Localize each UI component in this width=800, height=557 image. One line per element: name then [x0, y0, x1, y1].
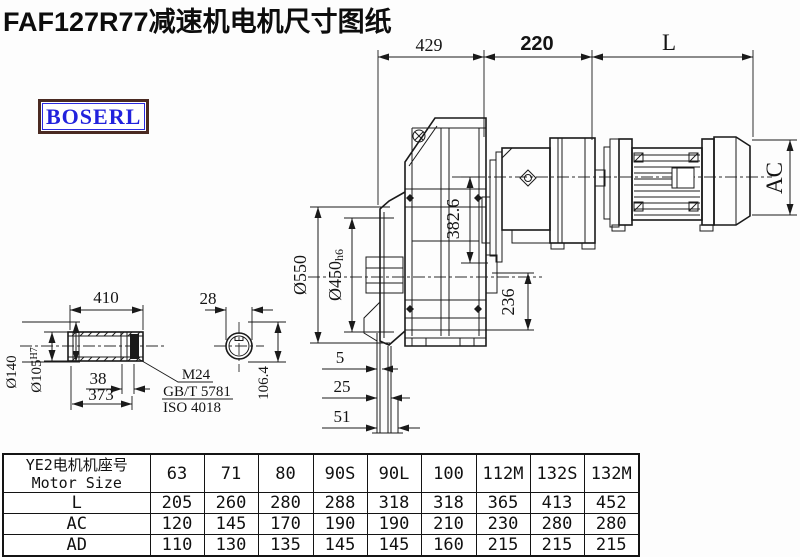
gearbox-outline [364, 118, 497, 433]
dim-373: 373 [88, 385, 114, 404]
table-cell: 145 [313, 535, 367, 557]
table-cell: 413 [530, 493, 584, 514]
size-col-header: 71 [204, 454, 258, 493]
table-cell: 280 [530, 514, 584, 535]
table-cell: 170 [258, 514, 313, 535]
table-cell: 452 [584, 493, 639, 514]
table-cell: 190 [367, 514, 421, 535]
table-cell: 230 [476, 514, 530, 535]
row-label: AC [3, 514, 150, 535]
row-label: L [3, 493, 150, 514]
note-gbt5781: GB/T 5781 [163, 384, 231, 400]
size-col-header: 100 [421, 454, 476, 493]
table-cell: 145 [367, 535, 421, 557]
table-row-L: L 205 260 280 288 318 318 365 413 452 [3, 493, 639, 514]
table-cell: 135 [258, 535, 313, 557]
dim-220: 220 [520, 33, 553, 55]
size-col-header: 132S [530, 454, 584, 493]
size-col-header: 90S [313, 454, 367, 493]
table-cell: 210 [421, 514, 476, 535]
table-cell: 318 [367, 493, 421, 514]
dim-429: 429 [416, 35, 443, 55]
dim-5: 5 [336, 348, 345, 367]
size-col-header: 112M [476, 454, 530, 493]
dim-28: 28 [200, 289, 217, 308]
adapter-outline [482, 138, 605, 262]
table-cell: 120 [150, 514, 204, 535]
size-col-header: 63 [150, 454, 204, 493]
dim-AC: AC [762, 162, 787, 194]
dim-dia105H7: Ø105H7 [29, 347, 45, 393]
row-label: AD [3, 535, 150, 557]
size-col-header: 80 [258, 454, 313, 493]
table-cell: 130 [204, 535, 258, 557]
dim-382-6: 382.6 [443, 199, 463, 240]
dim-236: 236 [498, 289, 518, 316]
dim-410: 410 [93, 288, 119, 307]
table-cell: 215 [476, 535, 530, 557]
motor-size-header-cn: YE2电机机座号 [4, 456, 150, 474]
dim-L: L [662, 30, 676, 55]
table-cell: 205 [150, 493, 204, 514]
dim-dia550: Ø550 [290, 255, 310, 295]
dimension-lines [52, 57, 790, 428]
table-cell: 365 [476, 493, 530, 514]
technical-drawing: 429 220 L AC Ø550 Ø450h6 382.6 236 5 25 … [0, 0, 800, 455]
motor-size-header-en: Motor Size [4, 474, 150, 492]
table-cell: 280 [258, 493, 313, 514]
motor-outline [604, 137, 750, 231]
table-cell: 260 [204, 493, 258, 514]
dimension-labels: 429 220 L AC Ø550 Ø450h6 382.6 236 5 25 … [4, 30, 787, 426]
table-cell: 318 [421, 493, 476, 514]
size-col-header: 90L [367, 454, 421, 493]
size-col-header: 132M [584, 454, 639, 493]
motor-size-header-cell: YE2电机机座号 Motor Size [3, 454, 150, 493]
table-row-AD: AD 110 130 135 145 145 160 215 215 215 [3, 535, 639, 557]
table-cell: 160 [421, 535, 476, 557]
table-cell: 215 [584, 535, 639, 557]
motor-size-table: YE2电机机座号 Motor Size 63 71 80 90S 90L 100… [2, 453, 640, 557]
dim-106-4: 106.4 [256, 366, 272, 400]
table-cell: 288 [313, 493, 367, 514]
table-cell: 145 [204, 514, 258, 535]
dim-dia450h6: Ø450h6 [325, 249, 346, 301]
dim-25: 25 [334, 377, 351, 396]
dim-51: 51 [334, 407, 351, 426]
table-header-row: YE2电机机座号 Motor Size 63 71 80 90S 90L 100… [3, 454, 639, 493]
table-cell: 280 [584, 514, 639, 535]
table-cell: 110 [150, 535, 204, 557]
dim-dia140: Ø140 [4, 355, 20, 388]
note-iso4018: ISO 4018 [163, 400, 221, 416]
table-row-AC: AC 120 145 170 190 190 210 230 280 280 [3, 514, 639, 535]
table-cell: 215 [530, 535, 584, 557]
note-m24: M24 [182, 367, 211, 383]
table-cell: 190 [313, 514, 367, 535]
